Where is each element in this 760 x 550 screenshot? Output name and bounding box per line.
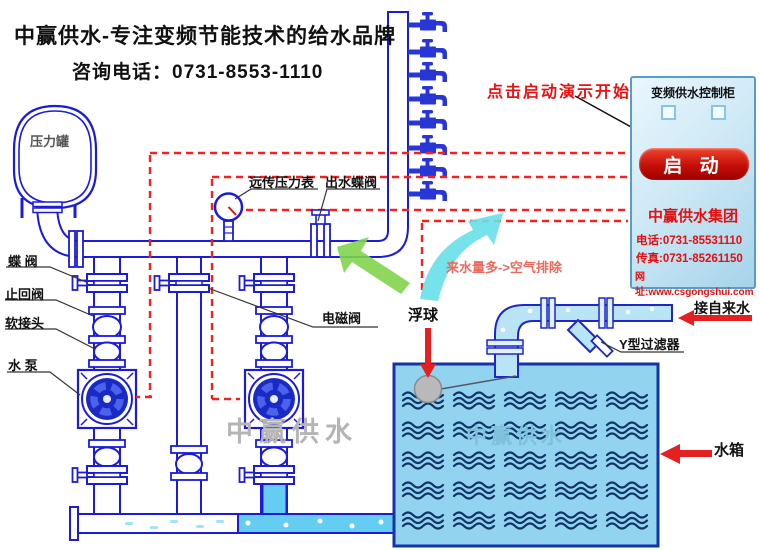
riser-faucets bbox=[408, 12, 447, 201]
faucet-icon bbox=[408, 12, 447, 32]
label-butterfly-valve: 蝶 阀 bbox=[8, 251, 38, 270]
label-remote-gauge: 远传压力表 bbox=[249, 172, 314, 191]
cabinet-phone: 电话:0731-85531110 bbox=[636, 232, 754, 248]
cabinet-website: 网址:www.csgongshui.com bbox=[635, 268, 755, 298]
label-water-tank: 水箱 bbox=[714, 439, 744, 460]
check-valve-icon bbox=[93, 316, 121, 338]
faucet-icon bbox=[408, 39, 447, 59]
air-purge-note: 来水量多->空气排除 bbox=[446, 257, 562, 276]
butterfly-valve-icon bbox=[73, 274, 128, 292]
label-tap-water: 接自来水 bbox=[694, 298, 750, 318]
hotline-phone: 咨询电话：0731-8553-1110 bbox=[72, 57, 323, 84]
watermark: 中赢供水 bbox=[226, 410, 358, 449]
click-start-hint: 点击启动演示开始 bbox=[487, 78, 631, 102]
label-y-filter: Y型过滤器 bbox=[619, 334, 680, 353]
cabinet-title: 变频供水控制柜 bbox=[632, 84, 754, 101]
flex-joint-icon bbox=[94, 343, 120, 362]
faucet-icon bbox=[408, 181, 447, 201]
label-check-valve: 止回阀 bbox=[5, 284, 44, 303]
control-cabinet-panel: 变频供水控制柜 启 动 中赢供水集团 电话:0731-85531110 传真:0… bbox=[630, 76, 756, 289]
faucet-icon bbox=[408, 62, 447, 82]
cabinet-company: 中赢供水集团 bbox=[632, 205, 754, 226]
indicator-light-2 bbox=[711, 105, 726, 120]
pressure-gauge bbox=[215, 194, 242, 242]
label-float-ball: 浮球 bbox=[408, 304, 438, 325]
label-pressure-tank: 压力罐 bbox=[30, 131, 69, 150]
pressure-tank bbox=[14, 106, 96, 218]
tank-pointer-arrow-icon bbox=[660, 444, 712, 464]
brand-slogan: 中赢供水-专注变频节能技术的给水品牌 bbox=[14, 20, 396, 50]
pump-1-icon bbox=[78, 370, 136, 428]
indicator-light-1 bbox=[661, 105, 676, 120]
demo-page: 中赢供水-专注变频节能技术的给水品牌 咨询电话：0731-8553-1110 点… bbox=[0, 0, 760, 550]
label-water-pump: 水 泵 bbox=[8, 355, 38, 374]
start-button[interactable]: 启 动 bbox=[639, 148, 749, 180]
cabinet-fax: 传真:0731-85261150 bbox=[636, 250, 754, 266]
label-solenoid-valve: 电磁阀 bbox=[322, 308, 361, 327]
solenoid-valve-icon bbox=[155, 274, 210, 292]
label-outlet-valve: 出水蝶阀 bbox=[325, 172, 377, 191]
label-flex-joint: 软接头 bbox=[5, 313, 44, 332]
faucet-icon bbox=[408, 158, 447, 178]
pump-line-2 bbox=[240, 274, 304, 515]
faucet-icon bbox=[408, 110, 447, 130]
watermark: 中赢供水 bbox=[466, 420, 566, 450]
faucet-icon bbox=[408, 86, 447, 106]
